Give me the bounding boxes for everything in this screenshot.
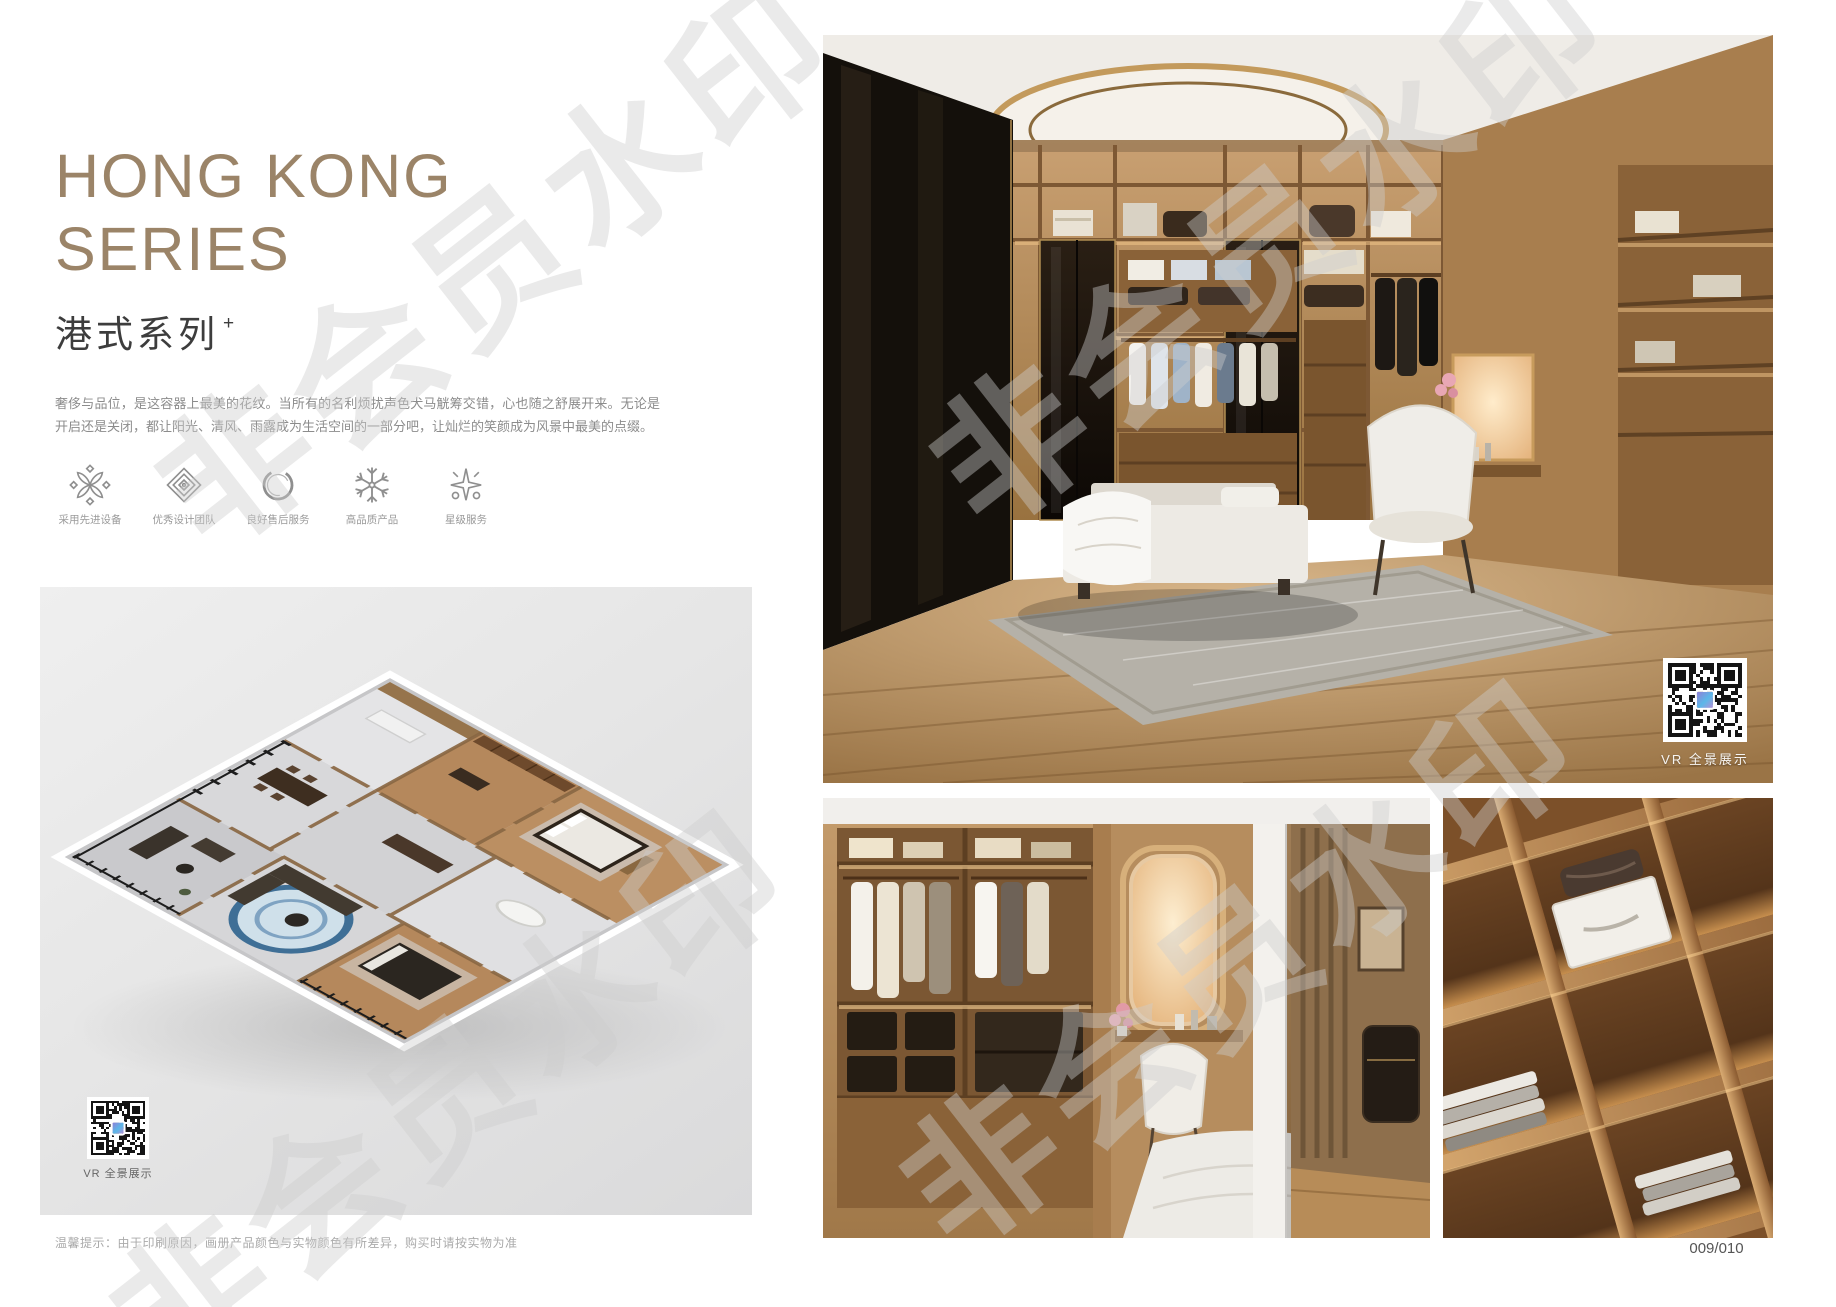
floorplan-vr-label: VR 全景展示	[70, 1165, 166, 1181]
series-intro: HONG KONG SERIES 港式系列+ 奢侈与品位，是这容器上最美的花纹。…	[55, 140, 715, 527]
snowflake-icon	[351, 464, 393, 506]
dressing-corner-photo	[823, 798, 1430, 1238]
shelf-closeup-photo	[1443, 798, 1773, 1238]
closet-photo-main: VR 全景展示	[823, 35, 1773, 783]
closet-photo-vr-label: VR 全景展示	[1635, 749, 1773, 768]
feature-label: 优秀设计团队	[153, 512, 216, 527]
series-subtitle-text: 港式系列	[55, 314, 219, 355]
pinwheel-icon	[69, 464, 111, 506]
page-number: 009/010	[1660, 1240, 1773, 1257]
series-title-line1: HONG KONG	[55, 140, 715, 213]
series-subtitle: 港式系列+	[55, 304, 715, 358]
feature-label: 高品质产品	[346, 512, 399, 527]
feature-item: 采用先进设备	[55, 464, 125, 527]
star-icon	[445, 464, 487, 506]
qr-pattern	[1663, 658, 1747, 742]
ring-icon	[257, 464, 299, 506]
series-title-line2: SERIES	[55, 213, 715, 286]
shelf-closeup-render	[1443, 798, 1773, 1238]
feature-item: 良好售后服务	[243, 464, 313, 527]
dressing-corner-render	[823, 798, 1430, 1238]
feature-list: 采用先进设备 优秀设计团队 良好售后服务	[55, 464, 715, 527]
feature-label: 良好售后服务	[247, 512, 310, 527]
catalog-page: HONG KONG SERIES 港式系列+ 奢侈与品位，是这容器上最美的花纹。…	[0, 0, 1836, 1307]
closet-photo-qr-code	[1663, 658, 1747, 742]
feature-label: 星级服务	[445, 512, 487, 527]
footer-note: 温馨提示：由于印刷原因，画册产品颜色与实物颜色有所差异，购买时请按实物为准	[55, 1234, 518, 1251]
feature-item: 星级服务	[431, 464, 501, 527]
feature-item: 高品质产品	[337, 464, 407, 527]
floorplan-qr-code	[87, 1097, 149, 1159]
rosette-icon	[163, 464, 205, 506]
feature-label: 采用先进设备	[59, 512, 122, 527]
series-description: 奢侈与品位，是这容器上最美的花纹。当所有的名利烦扰声色犬马觥筹交错，心也随之舒展…	[55, 392, 660, 438]
floorplan-figure: VR 全景展示	[40, 587, 752, 1215]
closet-render	[823, 35, 1773, 783]
feature-item: 优秀设计团队	[149, 464, 219, 527]
series-subtitle-plus: +	[223, 313, 238, 334]
qr-pattern	[87, 1097, 149, 1159]
